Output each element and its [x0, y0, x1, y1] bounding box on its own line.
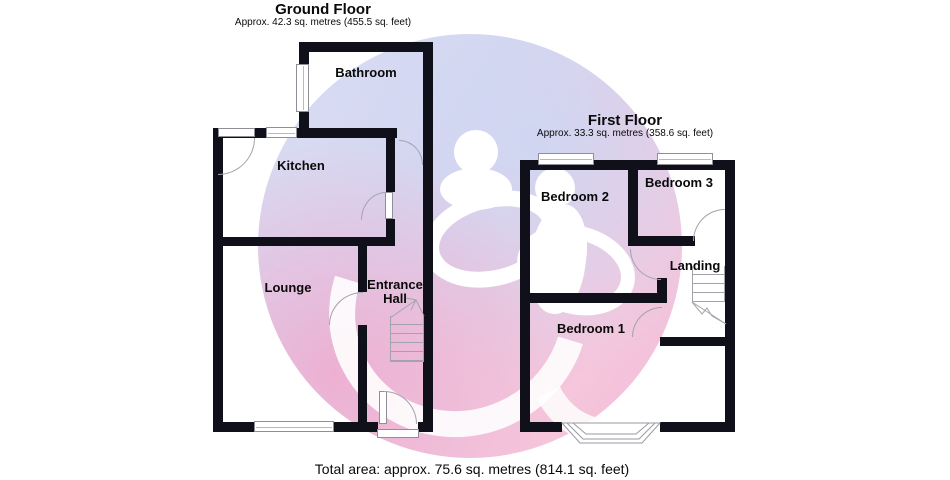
ff-stairs-break — [690, 300, 730, 328]
room-label-lounge: Lounge — [265, 280, 312, 295]
bedroom3-door-arc — [693, 209, 725, 241]
bedroom1-door-arc — [632, 307, 662, 337]
total-area-text: Total area: approx. 75.6 sq. metres (814… — [315, 461, 629, 477]
room-label-landing: Landing — [670, 258, 721, 273]
ff-landing-bottom-wall — [660, 337, 735, 346]
first-floor-title: First Floor — [588, 112, 662, 129]
bedroom3-window — [657, 153, 713, 165]
ff-bed2-bed3-divider — [628, 160, 638, 246]
ff-bed2-bed1-wall — [520, 293, 660, 303]
ff-landing-wall-piece — [657, 278, 667, 303]
first-floor-plan — [0, 0, 950, 480]
ff-right-wall — [725, 160, 735, 432]
bedroom1-bay-window — [550, 412, 666, 448]
ground-floor-subtitle: Approx. 42.3 sq. metres (455.5 sq. feet) — [235, 17, 411, 28]
room-label-entrance-hall: Entrance Hall — [354, 278, 436, 306]
room-label-bedroom1: Bedroom 1 — [557, 321, 625, 336]
ff-bottom-wall-right — [660, 422, 735, 432]
bedroom2-window — [538, 153, 594, 165]
bedroom2-door-arc — [630, 249, 661, 280]
room-label-kitchen: Kitchen — [277, 158, 325, 173]
ff-bed3-bottom-wall — [628, 236, 695, 246]
first-floor-subtitle: Approx. 33.3 sq. metres (358.6 sq. feet) — [537, 128, 713, 139]
room-label-bedroom2: Bedroom 2 — [541, 189, 609, 204]
room-label-bathroom: Bathroom — [335, 65, 396, 80]
room-label-bedroom3: Bedroom 3 — [645, 175, 713, 190]
floorplan-page: Ground Floor Approx. 42.3 sq. metres (45… — [0, 0, 950, 480]
ground-floor-title: Ground Floor — [275, 1, 371, 18]
